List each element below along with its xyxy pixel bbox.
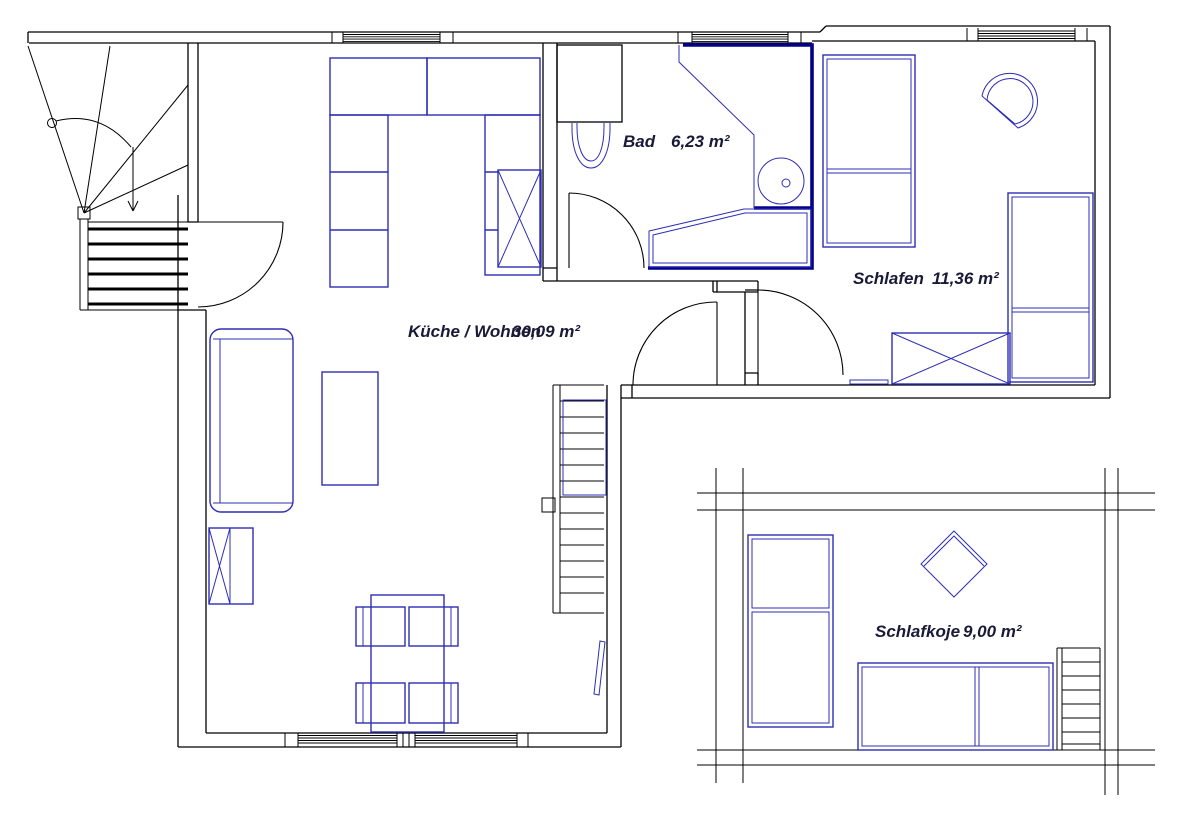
corridor-doors xyxy=(633,290,843,385)
coffee-table xyxy=(322,372,378,485)
winder-staircase xyxy=(28,46,188,310)
living-room: Küche / Wohnen 30,09 m² xyxy=(209,322,581,732)
living-window-right-icon xyxy=(415,736,517,744)
bath-window-icon xyxy=(692,35,788,42)
alcove-wardrobe-upper xyxy=(752,539,829,608)
alcove-wardrobe xyxy=(748,535,833,727)
bedroom: Schlafen 11,36 m² xyxy=(823,55,1093,384)
kitchen-counter-left-column xyxy=(330,115,388,287)
bedroom-door-swing xyxy=(758,290,843,375)
winder-fan-lines xyxy=(28,46,188,213)
alcove-bed-divider xyxy=(975,667,979,746)
washbasin-icon xyxy=(758,158,804,204)
kitchen-counter-top-right xyxy=(427,58,540,115)
sleeping-alcove: Schlafkoje 9,00 m² xyxy=(697,468,1155,795)
sideboard-cross-icon xyxy=(209,528,230,604)
alcove-bed-inner xyxy=(862,667,1049,746)
entrance-door-swing xyxy=(198,222,283,307)
entrance-door xyxy=(198,222,283,307)
tub-chair xyxy=(982,73,1037,128)
dresser-cross-icon xyxy=(892,333,1010,384)
leaning-board xyxy=(594,641,605,695)
middle-staircase xyxy=(542,385,606,695)
kitchen-left-dividers xyxy=(330,172,388,230)
kitchen-counter-top-left xyxy=(330,58,427,115)
bathroom-shaft xyxy=(557,45,622,122)
chair-backrest-lines xyxy=(363,607,451,723)
kitchen-window-icon xyxy=(343,35,440,42)
walkline-start-icon xyxy=(48,119,57,128)
bedroom-wardrobe-divider xyxy=(827,169,911,173)
bed xyxy=(1008,193,1093,382)
shower-enclosure xyxy=(679,45,754,208)
alcove-wardrobe-lower xyxy=(752,612,829,723)
bed-inner xyxy=(1012,197,1089,378)
bathroom-cell-wall xyxy=(648,45,812,268)
sofa-cushion-lines xyxy=(213,339,293,503)
bedroom-window-icon xyxy=(978,31,1075,39)
alcove-bed xyxy=(858,663,1053,750)
alcove-name: Schlafkoje xyxy=(875,622,960,641)
sofa xyxy=(210,329,293,512)
sideboard xyxy=(209,528,253,604)
flight-stringers xyxy=(80,219,188,310)
middle-stair-treads xyxy=(560,401,604,593)
threshold-marker xyxy=(850,380,888,384)
living-door-swing xyxy=(633,302,717,385)
bath-bench xyxy=(649,209,811,267)
washbasin-drain-icon xyxy=(782,179,790,187)
alcove-table xyxy=(921,531,987,597)
bed-divider xyxy=(1012,308,1089,312)
bedroom-wardrobe-inner xyxy=(827,59,911,243)
alcove-area: 9,00 m² xyxy=(963,622,1023,641)
kitchen-right-dividers xyxy=(485,172,498,230)
living-room-area: 30,09 m² xyxy=(512,322,581,341)
living-window-left-icon xyxy=(298,736,397,744)
kitchen-sink-cross-icon xyxy=(498,170,541,267)
stair-walkline xyxy=(56,118,131,147)
floor-plan-drawing: Bad 6,23 m² Küche / Wohnen 30,09 m² xyxy=(0,0,1190,816)
bedroom-area: 11,36 m² xyxy=(932,269,1000,288)
bad-room-name: Bad xyxy=(623,132,656,151)
flight-treads xyxy=(88,229,188,304)
middle-stair-stringers xyxy=(553,385,604,613)
bedroom-wardrobe xyxy=(823,55,915,247)
dining-table xyxy=(371,595,444,732)
kitchen-counter-right-column xyxy=(485,115,540,275)
kitchen-units xyxy=(330,58,541,287)
floor-plan-page: Bad 6,23 m² Küche / Wohnen 30,09 m² xyxy=(0,0,1190,816)
bathroom: Bad 6,23 m² xyxy=(569,45,812,268)
bath-door-swing xyxy=(569,193,644,268)
bad-room-area: 6,23 m² xyxy=(671,132,731,151)
bedroom-window-jambs xyxy=(967,28,1087,41)
toilet-icon xyxy=(572,123,610,168)
alcove-ladder xyxy=(1057,648,1100,750)
bedroom-name: Schlafen xyxy=(853,269,924,288)
